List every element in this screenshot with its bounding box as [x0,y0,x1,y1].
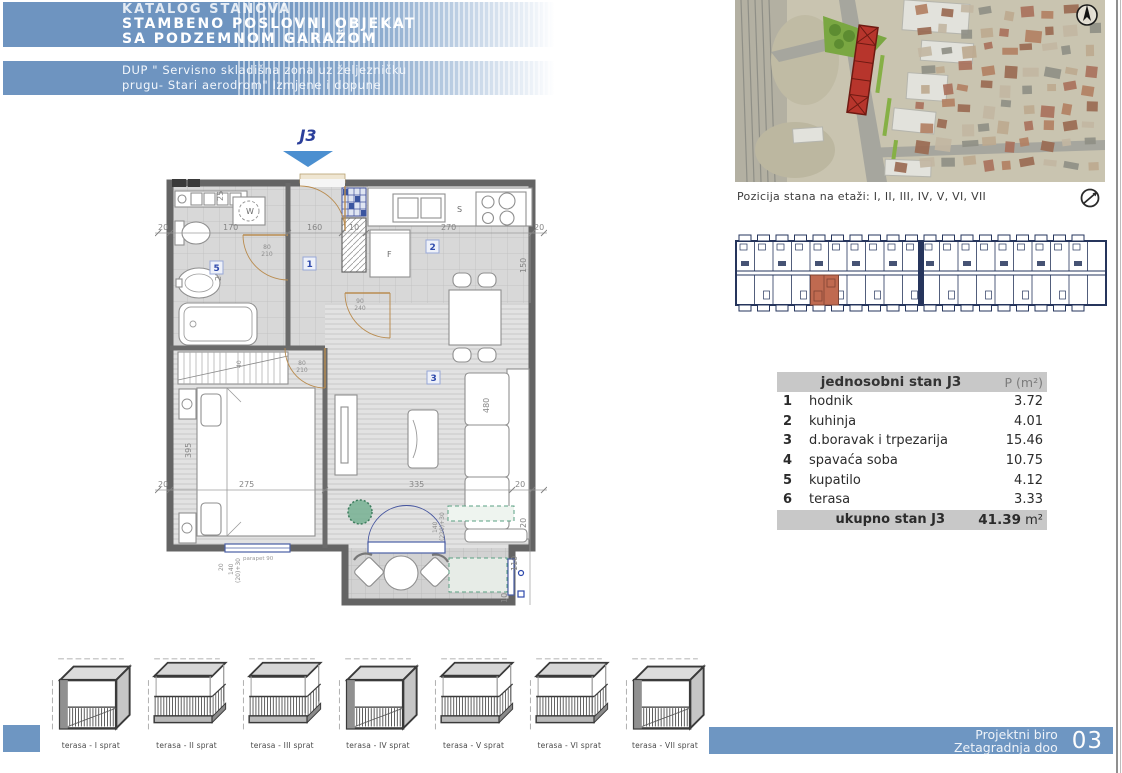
room-number: 6 [777,492,809,507]
dim: 270 [441,223,456,232]
dim: 160 [307,223,322,232]
dim: 25 [216,191,225,201]
svg-text:3: 3 [431,374,437,384]
page-border [1120,0,1121,773]
room-name: spavaća soba [809,453,983,468]
room-name: d.boravak i trpezarija [809,433,983,448]
terrace-table [384,556,418,590]
total-value: 41.39 m² [959,512,1047,528]
sink-letter: S [457,205,462,214]
dim: 335 [409,480,424,489]
studio-line1: Projektni biro [954,728,1058,741]
table-row: 6 terasa 3.33 [777,490,1047,510]
svg-text:1: 1 [307,260,313,270]
room-area: 3.33 [983,492,1047,507]
dim: 170 [223,223,238,232]
dim: 110 [510,556,519,571]
studio-line2: Zetagradnja doo [954,741,1058,754]
terrace-drawing [141,655,233,740]
terrace-label: terasa - V sprat [426,741,522,750]
table-body: 1 hodnik 3.722 kuhinja 4.013 d.boravak i… [777,392,1047,510]
washer-letter: W [246,207,254,216]
sofa-armrest [465,529,527,542]
terrace-drawing [428,655,520,740]
pillow [201,503,221,535]
catalog-page: KATALOG STANOVA STAMBENO POSLOVNI OBJEKA… [0,0,1122,773]
terrace-drawing [619,655,711,740]
room-area: 4.01 [983,414,1047,429]
terrace-figure-5: terasa - V sprat [426,655,522,760]
table-footer: ukupno stan J3 41.39 m² [777,510,1047,530]
dim: 10 [349,223,359,232]
table-title: jednosobni stan J3 [803,374,979,390]
room-marker-kitchen: 2 [426,240,439,253]
room-number: 5 [777,473,809,488]
floor-plan: W S F [155,173,547,625]
table-row: 4 spavaća soba 10.75 [777,451,1047,471]
dim: 20 [158,223,168,232]
terrace-figure-3: terasa - III sprat [234,655,330,760]
terrace-figure-2: terasa - II sprat [139,655,235,760]
room-number: 2 [777,414,809,429]
door-dim: 140 [228,563,235,575]
wall-section [172,179,186,187]
dining-table [449,290,501,345]
dim: 20 [218,563,225,571]
dim: 20 [519,518,528,528]
door-dim: 210 [296,367,308,374]
room-name: kupatilo [809,473,983,488]
dim: 20 [534,223,544,232]
door-dim: 80 [263,244,271,251]
terrace-label: terasa - II sprat [139,741,235,750]
building-title-line1: STAMBENO POSLOVNI OBJEKAT [122,17,555,32]
table-header: jednosobni stan J3 P (m²) [777,372,1047,392]
room-number: 1 [777,394,809,409]
area-column-header: P (m²) [979,375,1047,390]
door-dim: (20)+30 [235,558,242,583]
table-row: 3 d.boravak i trpezarija 15.46 [777,431,1047,451]
room-area: 15.46 [983,433,1047,448]
site-map [735,0,1105,182]
chair [478,348,496,362]
pillow [201,394,221,426]
room-name: kuhinja [809,414,983,429]
section-mark-icon [1079,187,1101,209]
building-floor-strip [734,233,1108,317]
entry-opening [300,179,345,187]
sofa-cushion [465,425,509,477]
terrace-drawing [332,655,424,740]
floor-position-caption: Pozicija stana na etaži: I, II, III, IV,… [737,190,1067,203]
corner-decoration [3,725,40,752]
north-arrow-icon [1077,5,1097,25]
area-table: jednosobni stan J3 P (m²) 1 hodnik 3.722… [777,372,1047,530]
dim: 480 [482,398,491,413]
page-number: 03 [1072,728,1103,754]
door-dim: (220)+30 [439,512,446,541]
dup-line2: prugu- Stari aerodrom" Izmjene i dopune [122,78,555,93]
door-dim: 80 [298,360,306,367]
fridge-letter: F [387,250,392,259]
room-marker-bathroom: 5 [210,261,223,274]
terrace-door [368,542,445,553]
terrace-drawing [236,655,328,740]
terrace-label: terasa - VI sprat [521,741,617,750]
svg-text:5: 5 [214,264,220,274]
terrace-variants-strip: terasa - I sprat terasa - II sprat teras… [43,655,713,760]
highlighted-unit [811,275,839,305]
dup-line1: DUP " Servisno skladišna zona uz željezn… [122,63,555,78]
dim: 395 [184,443,193,458]
plant [348,500,372,524]
dim: 20 [515,480,525,489]
room-area: 10.75 [983,453,1047,468]
title-bar: KATALOG STANOVA STAMBENO POSLOVNI OBJEKA… [3,2,555,47]
room-marker-hall: 1 [303,257,316,270]
total-label: ukupno stan J3 [777,512,959,527]
dim: 275 [239,480,254,489]
chair [453,348,471,362]
terrace-figure-7: terasa - VII sprat [617,655,713,760]
svg-text:2: 2 [430,243,436,253]
chair [478,273,496,287]
planter [448,506,514,521]
building-title-line2: SA PODZEMNOM GARAŽOM [122,32,555,47]
table-row: 1 hodnik 3.72 [777,392,1047,412]
bathtub [179,303,257,345]
terrace-drawing [45,655,137,740]
terrace-planter [449,558,507,592]
dim: 40 [236,360,243,368]
dim: 150 [519,258,528,273]
table-row: 5 kupatilo 4.12 [777,470,1047,490]
unit-title: J3 [283,126,333,145]
wall-section [188,179,200,187]
parapet-label: parapet 90 [243,556,274,562]
coffee-table [408,410,438,468]
room-name: terasa [809,492,983,507]
room-name: hodnik [809,394,983,409]
page-border [1116,0,1118,773]
subtitle-bar: DUP " Servisno skladišna zona uz željezn… [3,61,555,95]
terrace-label: terasa - I sprat [43,741,139,750]
door-dim: 140 [432,521,439,533]
studio-name: Projektni biro Zetagradnja doo [954,728,1058,754]
door-dim: 90 [356,298,364,305]
basin-tap [176,279,182,287]
terrace-drawing [523,655,615,740]
dim: 10 [500,593,509,603]
dim: 20 [158,480,168,489]
room-number: 3 [777,433,809,448]
room-marker-living: 3 [427,371,440,384]
room-number: 4 [777,453,809,468]
room-area: 3.72 [983,394,1047,409]
catalog-title: KATALOG STANOVA [122,3,555,17]
chair [453,273,471,287]
room-area: 4.12 [983,473,1047,488]
footer-bar: Projektni biro Zetagradnja doo 03 [709,727,1113,754]
terrace-figure-6: terasa - VI sprat [521,655,617,760]
door-dim: 210 [261,251,273,258]
terrace-figure-1: terasa - I sprat [43,655,139,760]
unit-arrow-icon [283,151,333,167]
terrace-figure-4: terasa - IV sprat [330,655,426,760]
terrace-label: terasa - VII sprat [617,741,713,750]
door-dim: 240 [354,305,366,312]
terrace-label: terasa - IV sprat [330,741,426,750]
table-row: 2 kuhinja 4.01 [777,412,1047,432]
terrace-label: terasa - III sprat [234,741,330,750]
